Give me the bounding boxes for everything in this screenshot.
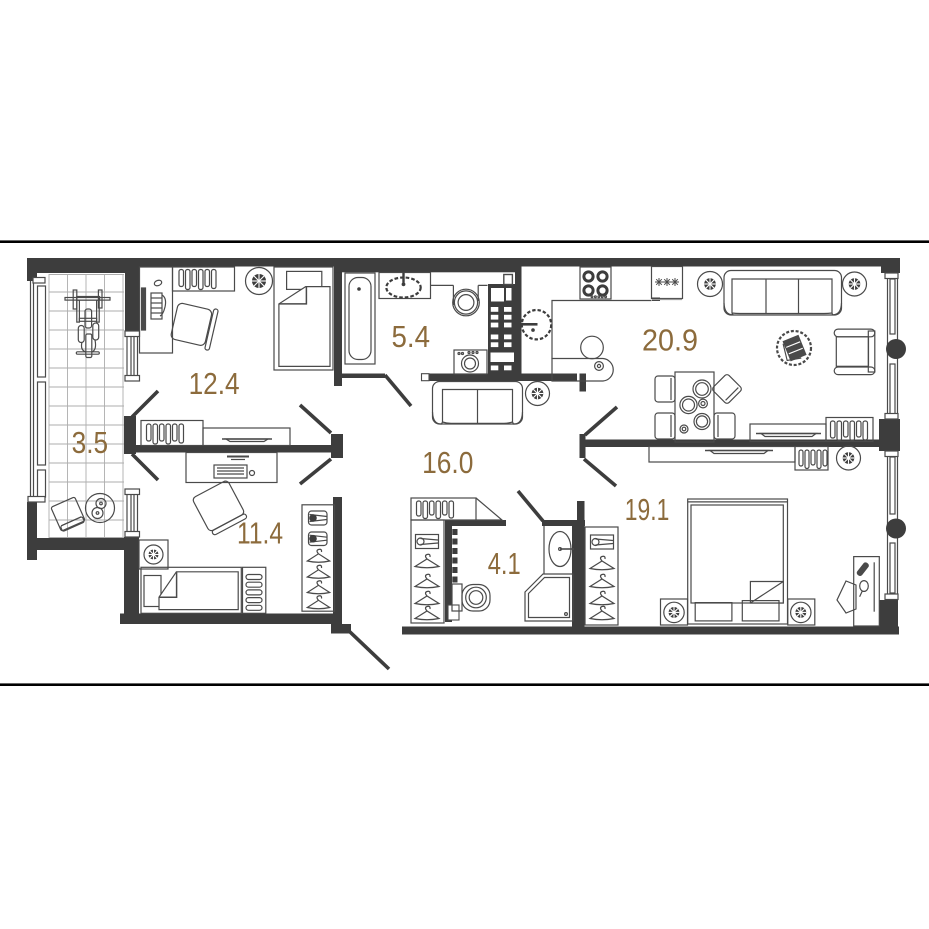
svg-text:11.4: 11.4 [237, 517, 283, 551]
svg-text:5.4: 5.4 [392, 320, 431, 354]
svg-text:12.4: 12.4 [189, 367, 240, 401]
svg-text:4.1: 4.1 [488, 547, 521, 581]
svg-text:3.5: 3.5 [72, 426, 109, 460]
svg-text:20.9: 20.9 [642, 324, 698, 358]
svg-text:16.0: 16.0 [422, 446, 473, 480]
svg-text:19.1: 19.1 [625, 493, 670, 527]
